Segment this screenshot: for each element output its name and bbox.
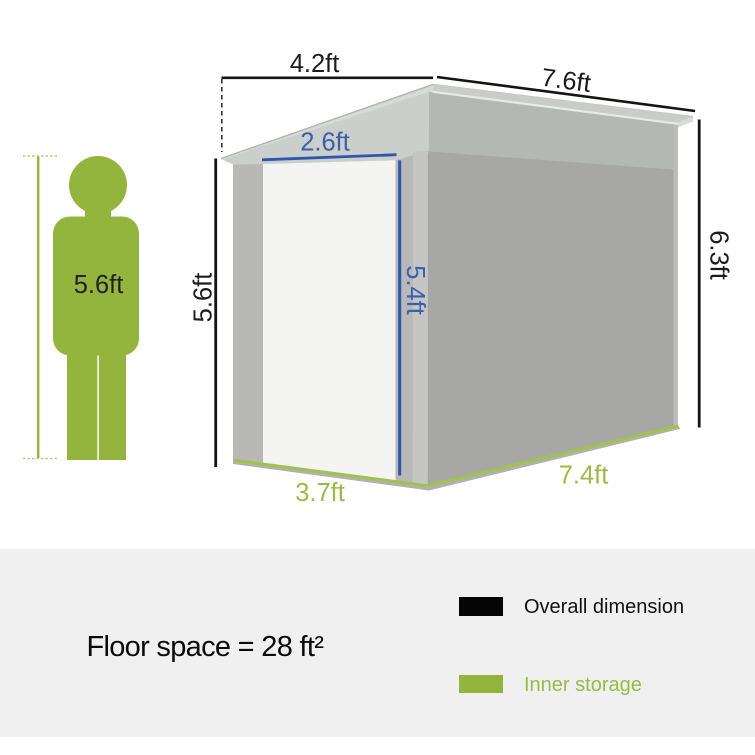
- svg-text:7.4ft: 7.4ft: [559, 462, 609, 490]
- svg-text:Inner storage: Inner storage: [524, 674, 642, 696]
- svg-text:Overall dimension: Overall dimension: [524, 596, 684, 618]
- svg-text:5.4ft: 5.4ft: [401, 265, 429, 315]
- svg-text:4.2ft: 4.2ft: [290, 50, 340, 78]
- svg-text:6.3ft: 6.3ft: [704, 230, 732, 280]
- svg-text:2.6ft: 2.6ft: [300, 129, 350, 157]
- svg-text:5.6ft: 5.6ft: [74, 271, 124, 299]
- svg-text:3.7ft: 3.7ft: [295, 479, 345, 507]
- svg-text:Floor space = 28 ft²: Floor space = 28 ft²: [87, 631, 325, 663]
- svg-text:5.6ft: 5.6ft: [190, 273, 218, 323]
